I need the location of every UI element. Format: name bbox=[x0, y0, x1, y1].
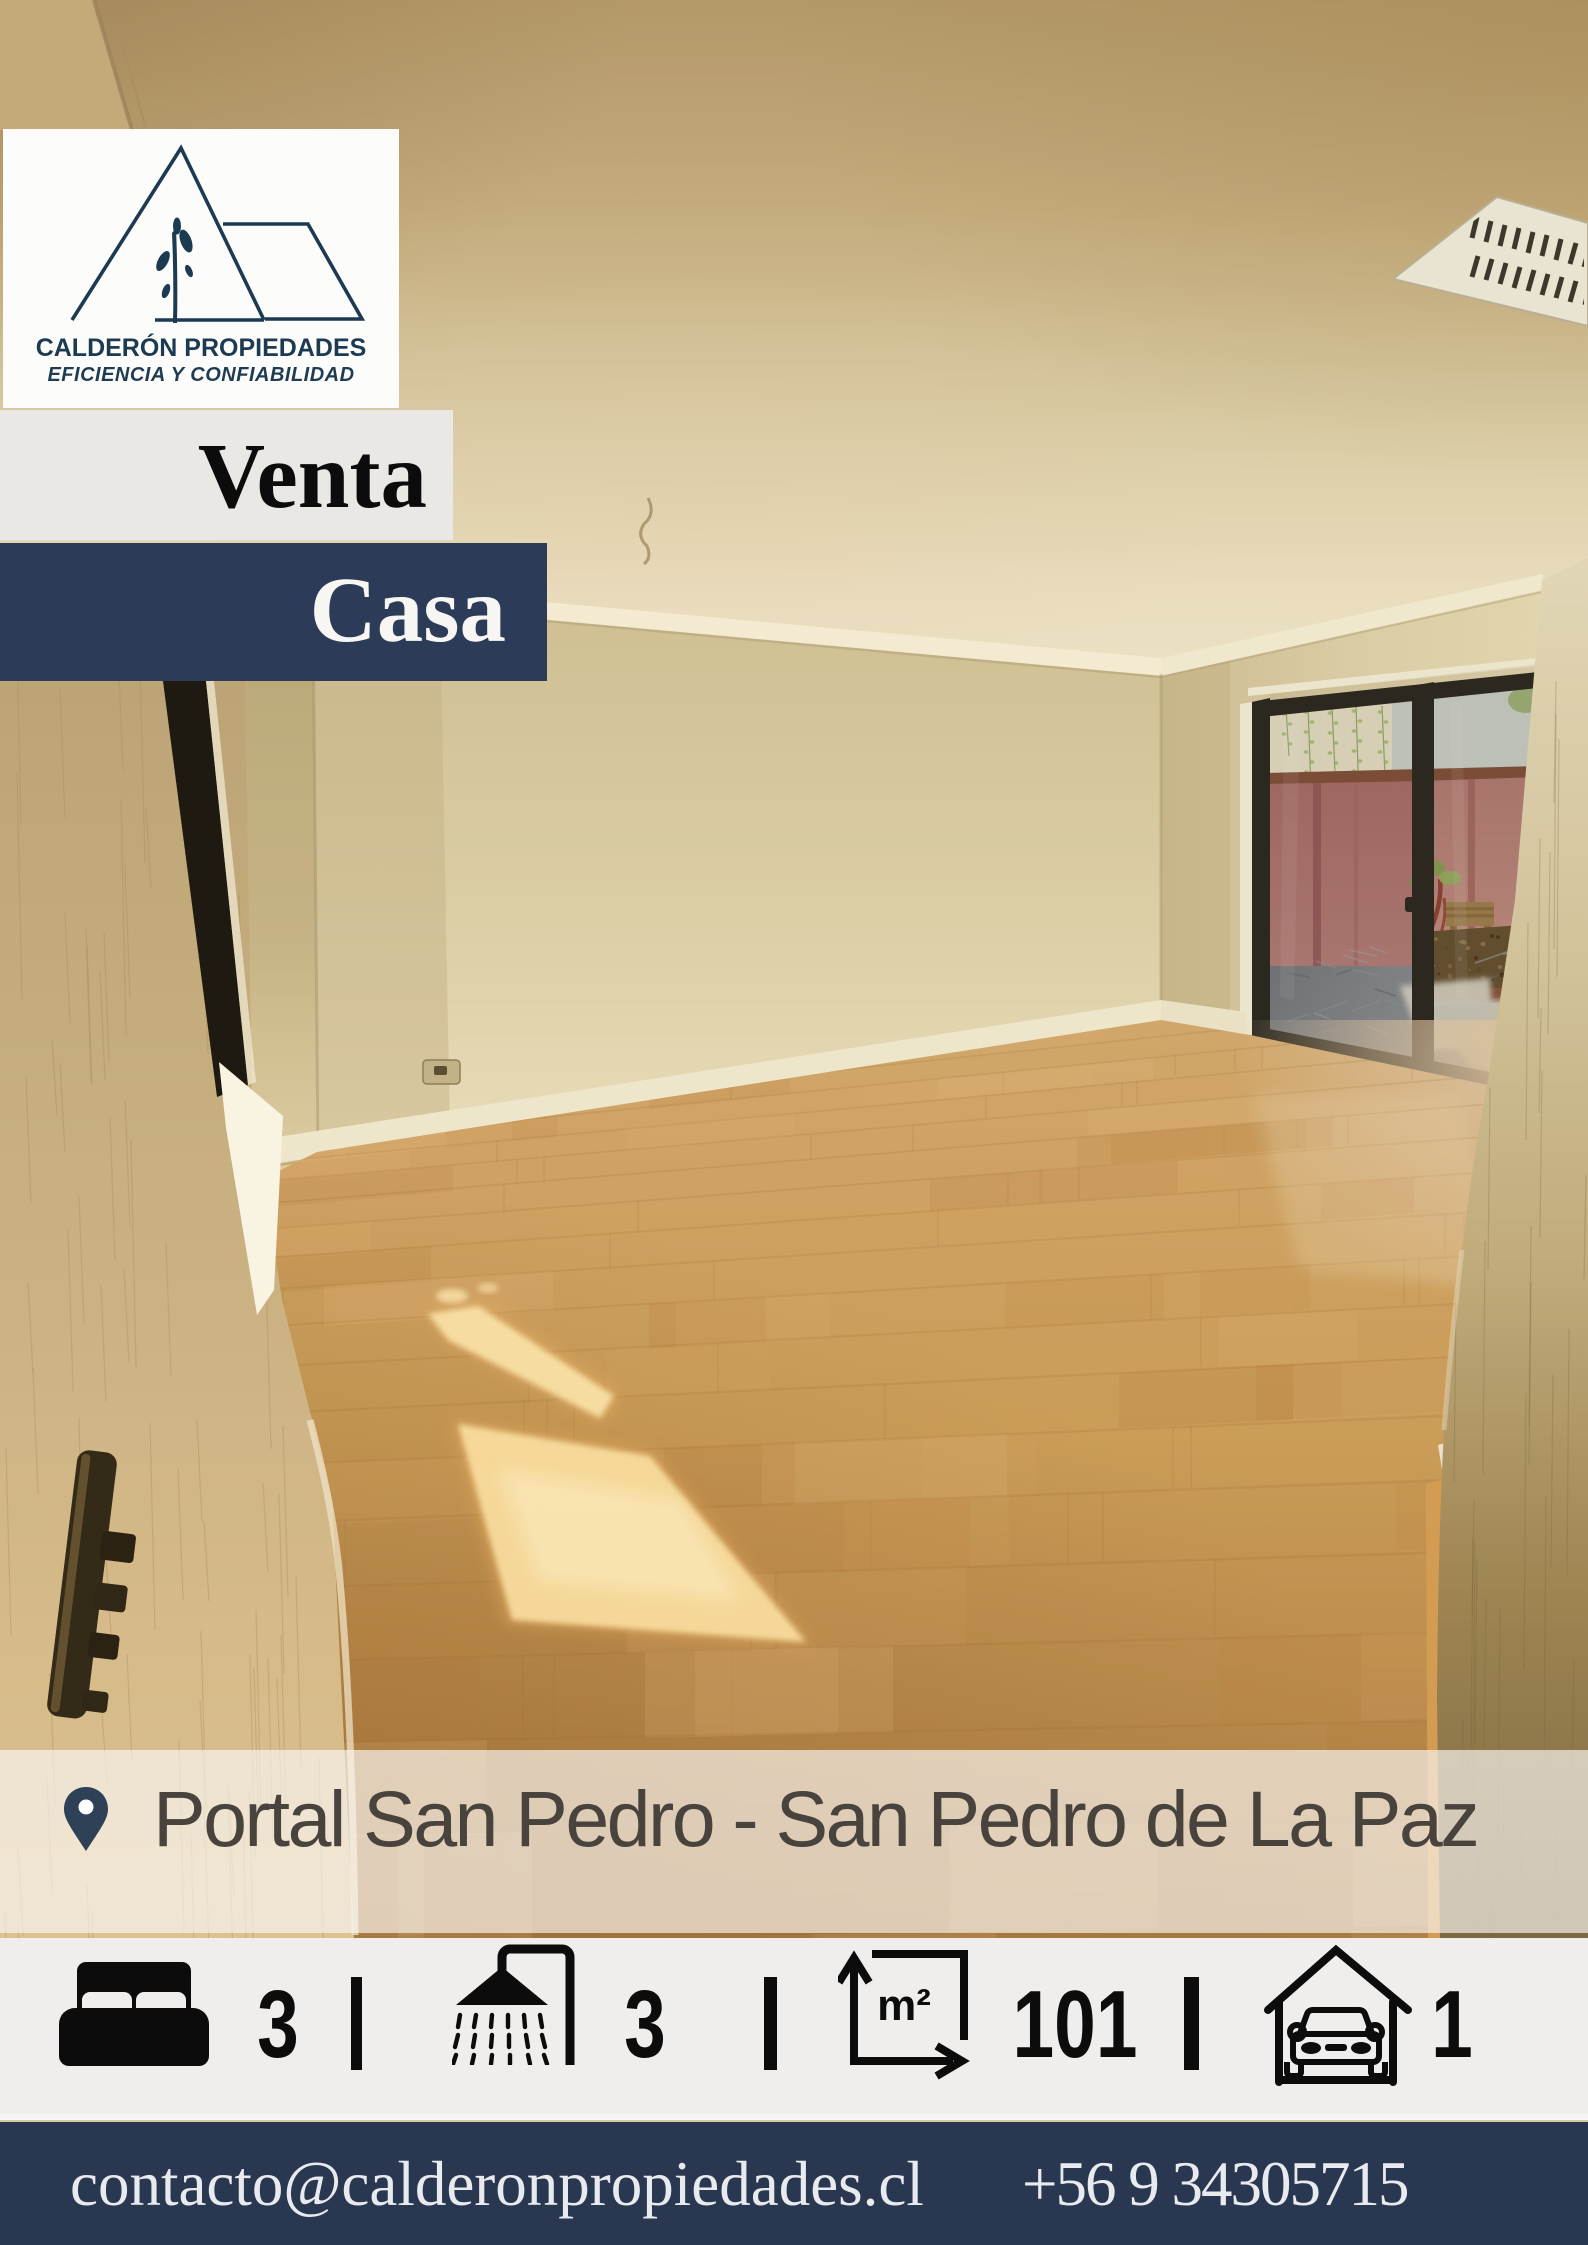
svg-text:m²: m² bbox=[877, 1981, 931, 2030]
